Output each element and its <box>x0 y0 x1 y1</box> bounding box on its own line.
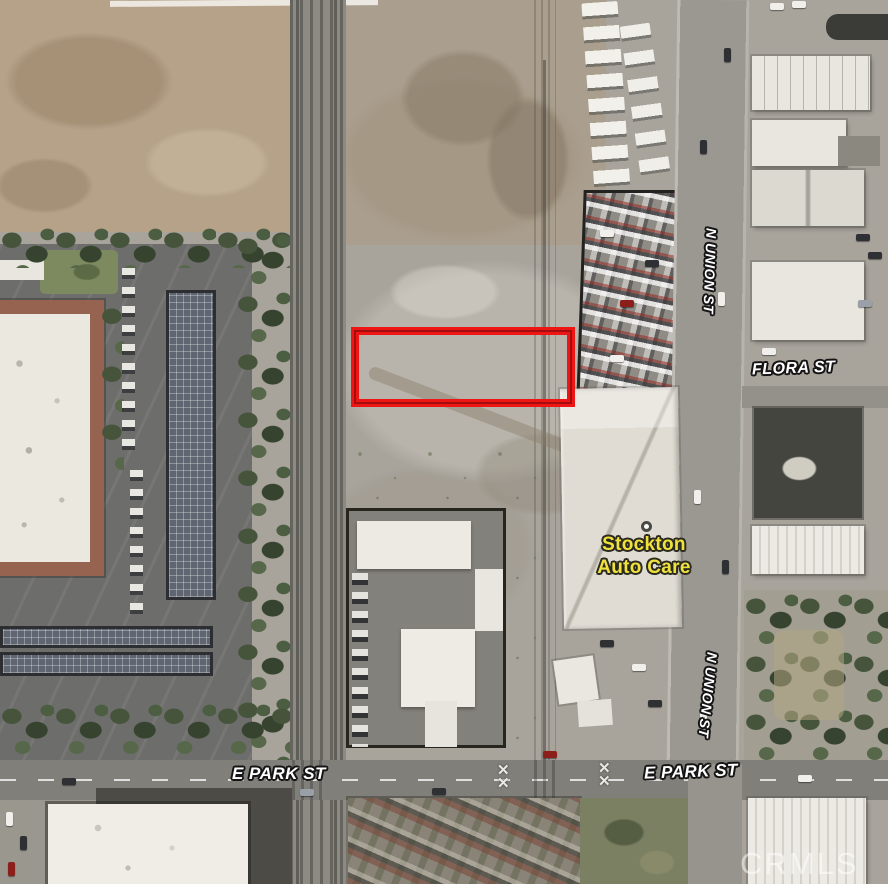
parcel-highlight-inner-line <box>356 332 570 402</box>
railroad-corridor <box>290 0 346 884</box>
poi-label-line1: Stockton <box>588 533 700 556</box>
poi-label-line2: Auto Care <box>588 556 700 579</box>
car <box>620 300 634 307</box>
poi-marker-icon <box>641 521 652 532</box>
shop-building <box>401 629 475 707</box>
shop-building <box>475 569 503 631</box>
n-union-street-road-south <box>688 764 742 884</box>
solar-carport-row-2 <box>0 652 213 676</box>
parked-car-row <box>130 470 143 620</box>
dry-grass-patch <box>774 630 844 720</box>
overgrown-lot-south <box>580 798 690 884</box>
poi-label-stockton-auto-care: Stockton Auto Care <box>588 533 700 579</box>
white-building-south <box>48 804 248 884</box>
car <box>718 292 725 306</box>
car <box>300 789 314 796</box>
car <box>645 260 659 267</box>
truck <box>792 1 806 8</box>
car <box>724 48 731 62</box>
street-label-n-union-upper: N UNION ST <box>701 228 720 314</box>
car <box>694 490 701 504</box>
railroad-crossing <box>534 760 556 800</box>
parked-car-row <box>352 573 368 747</box>
overgrown-yard <box>744 590 888 762</box>
industrial-building <box>752 56 870 110</box>
small-building <box>577 699 613 727</box>
vacant-lot-north <box>346 0 606 245</box>
car <box>610 355 624 362</box>
ribbed-roof-building <box>752 526 864 574</box>
tree-line-railroad <box>236 230 296 764</box>
roof-units <box>0 314 90 562</box>
car <box>858 300 872 307</box>
stockton-auto-care-building <box>560 387 682 629</box>
dark-roof-building-ne <box>826 14 888 40</box>
debris-yard-south <box>348 798 580 884</box>
car <box>632 664 646 671</box>
shop-building <box>357 521 471 569</box>
dirt-field <box>0 0 296 232</box>
street-label-e-park-left: E PARK ST <box>232 764 326 784</box>
parcel-highlight-mid-line <box>354 330 572 404</box>
industrial-building <box>752 170 864 226</box>
car <box>543 751 557 758</box>
auto-shop-complex <box>346 508 506 748</box>
parked-car-row <box>122 268 135 458</box>
car <box>798 775 812 782</box>
car <box>8 862 15 876</box>
truck <box>770 3 784 10</box>
car <box>700 140 707 154</box>
car <box>856 234 870 241</box>
dark-roof-building <box>754 408 862 518</box>
satellite-map: N UNION ST N UNION ST FLORA ST E PARK ST… <box>0 0 888 884</box>
car <box>20 836 27 850</box>
car <box>722 560 729 574</box>
bush-row <box>100 300 124 470</box>
parcel-highlight <box>351 327 575 407</box>
car <box>432 788 446 795</box>
car <box>762 348 776 355</box>
street-label-flora: FLORA ST <box>752 359 836 380</box>
car <box>6 812 13 826</box>
industrial-building <box>752 262 864 340</box>
junkyard-lot <box>576 190 681 402</box>
building-annex <box>838 136 880 166</box>
car <box>648 700 662 707</box>
car <box>600 640 614 647</box>
railroad-crossing-marking-icon <box>598 762 611 788</box>
crmls-watermark: CRMLS <box>740 846 859 882</box>
brown-roof-building <box>0 300 104 576</box>
car <box>600 230 614 237</box>
car <box>62 778 76 785</box>
street-label-e-park-right: E PARK ST <box>644 760 739 783</box>
industrial-building <box>752 120 846 166</box>
small-building <box>553 655 599 704</box>
car <box>868 252 882 259</box>
flora-street-road <box>742 386 888 408</box>
solar-carport-vertical <box>166 290 216 600</box>
road-centerline <box>0 779 888 781</box>
railroad-crossing-marking-icon <box>497 764 510 790</box>
shop-building <box>425 701 457 747</box>
solar-carport-row-1 <box>0 626 213 648</box>
